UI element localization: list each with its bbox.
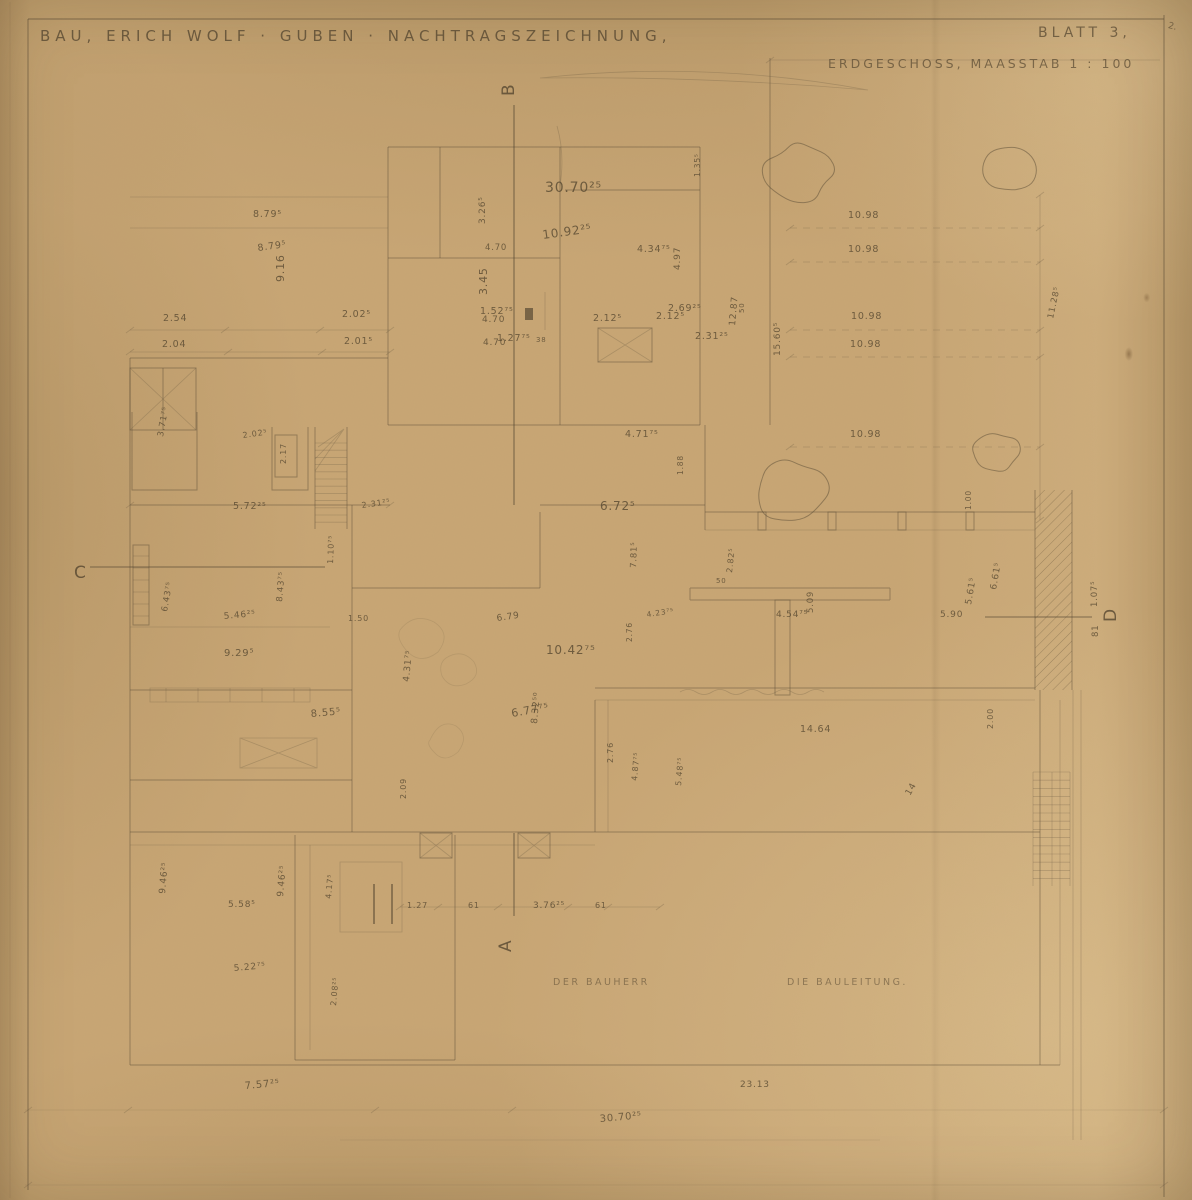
dimension-label: 10.98 bbox=[848, 210, 879, 221]
dimension-label: 10.42⁷⁵ bbox=[546, 643, 596, 657]
dimension-label: 2.00 bbox=[986, 708, 995, 729]
dimension-label: 4.71⁷⁵ bbox=[625, 429, 659, 440]
dimension-label: 4.70 bbox=[483, 338, 506, 348]
dimension-label: 7.81⁵ bbox=[629, 541, 640, 568]
dimension-label: 2.76 bbox=[625, 622, 634, 642]
dimension-label: 2.01⁵ bbox=[344, 336, 373, 347]
dimension-label: 2.04 bbox=[162, 339, 186, 350]
title-drawing-scale: ERDGESCHOSS, MAASSTAB 1 : 100 bbox=[828, 56, 1134, 71]
dimension-label: 5.09 bbox=[806, 591, 816, 613]
dimension-label: 8.79⁵ bbox=[253, 209, 282, 220]
dimension-label: 1.50 bbox=[348, 614, 369, 623]
dimension-label: 38 bbox=[536, 336, 547, 344]
dimension-label: 3.76²⁵ bbox=[533, 901, 565, 911]
dimension-label: 4.70 bbox=[485, 243, 507, 253]
floor-plan-svg: 8.79⁵8.79⁵9.162.542.02⁵1.52⁷⁵2.69²⁵2.042… bbox=[0, 0, 1192, 1200]
dimension-label: 9.29⁵ bbox=[224, 648, 254, 659]
dimension-label: 10.98 bbox=[848, 244, 879, 255]
dimension-label: 5.72²⁵ bbox=[233, 501, 267, 512]
dimension-label: 3.26⁵ bbox=[478, 196, 488, 224]
dimension-label: 61 bbox=[595, 901, 607, 910]
dimension-label: 2.09 bbox=[399, 778, 408, 799]
dimension-label: 61 bbox=[468, 901, 480, 910]
drawing-sheet: 8.79⁵8.79⁵9.162.542.02⁵1.52⁷⁵2.69²⁵2.042… bbox=[0, 0, 1192, 1200]
dimension-label: 50 bbox=[716, 577, 727, 585]
signature-site-management: DIE BAULEITUNG. bbox=[787, 977, 908, 988]
dimension-label: 1.88 bbox=[676, 455, 685, 475]
dimension-label: 6.72⁵ bbox=[600, 499, 636, 513]
dimension-label: 1.00 bbox=[964, 490, 973, 510]
dimension-label: 1.10⁷⁵ bbox=[326, 535, 336, 564]
dimension-label: 2.17 bbox=[279, 443, 288, 464]
dimension-label: 5.58⁵ bbox=[228, 900, 256, 910]
dimension-label: 15.60⁵ bbox=[773, 322, 783, 356]
dimension-label: 2.76 bbox=[606, 742, 615, 763]
dimension-label: 9.16 bbox=[274, 254, 287, 282]
dimension-label: 1.07⁵ bbox=[1090, 581, 1100, 607]
dimension-label: 81 bbox=[1091, 625, 1101, 637]
section-marker-a: A bbox=[496, 940, 516, 952]
dimension-label: 30.70²⁵ bbox=[545, 180, 602, 196]
dimension-label: 4.70 bbox=[482, 315, 505, 325]
dimension-label: 23.13 bbox=[740, 1080, 770, 1090]
dimension-label: 2.02⁵ bbox=[342, 309, 371, 320]
dimension-label: 50 bbox=[738, 302, 746, 313]
dimension-label: 1.27 bbox=[407, 901, 428, 910]
dimension-label: 3.45 bbox=[477, 267, 490, 295]
signature-owner: DER BAUHERR bbox=[553, 977, 650, 988]
dimension-label: 1.35⁵ bbox=[693, 153, 702, 177]
dimension-label: 10.98 bbox=[850, 339, 881, 350]
dimension-label: 10.98 bbox=[851, 311, 882, 322]
dimension-label: 2.54 bbox=[163, 313, 187, 324]
dimension-label: 2.31²⁵ bbox=[695, 331, 729, 342]
dimension-label: 5.90 bbox=[940, 610, 963, 620]
dimension-label: 4.54⁷⁵ bbox=[776, 610, 808, 620]
section-marker-b: B bbox=[499, 84, 519, 96]
dimension-label: 2.12⁵ bbox=[656, 311, 685, 322]
dimension-label: 4.34⁷⁵ bbox=[637, 244, 671, 255]
title-sheet-number: BLATT 3, bbox=[1038, 25, 1131, 41]
dimension-label: 14.64 bbox=[800, 724, 831, 735]
section-marker-c: C bbox=[74, 563, 86, 583]
dimension-label: 4.97 bbox=[673, 247, 683, 270]
dimension-label: 2.12⁵ bbox=[593, 313, 622, 324]
section-marker-d: D bbox=[1101, 609, 1121, 622]
title-project: BAU, ERICH WOLF · GUBEN · NACHTRAGSZEICH… bbox=[40, 27, 672, 45]
dimension-label: 10.98 bbox=[850, 429, 881, 440]
